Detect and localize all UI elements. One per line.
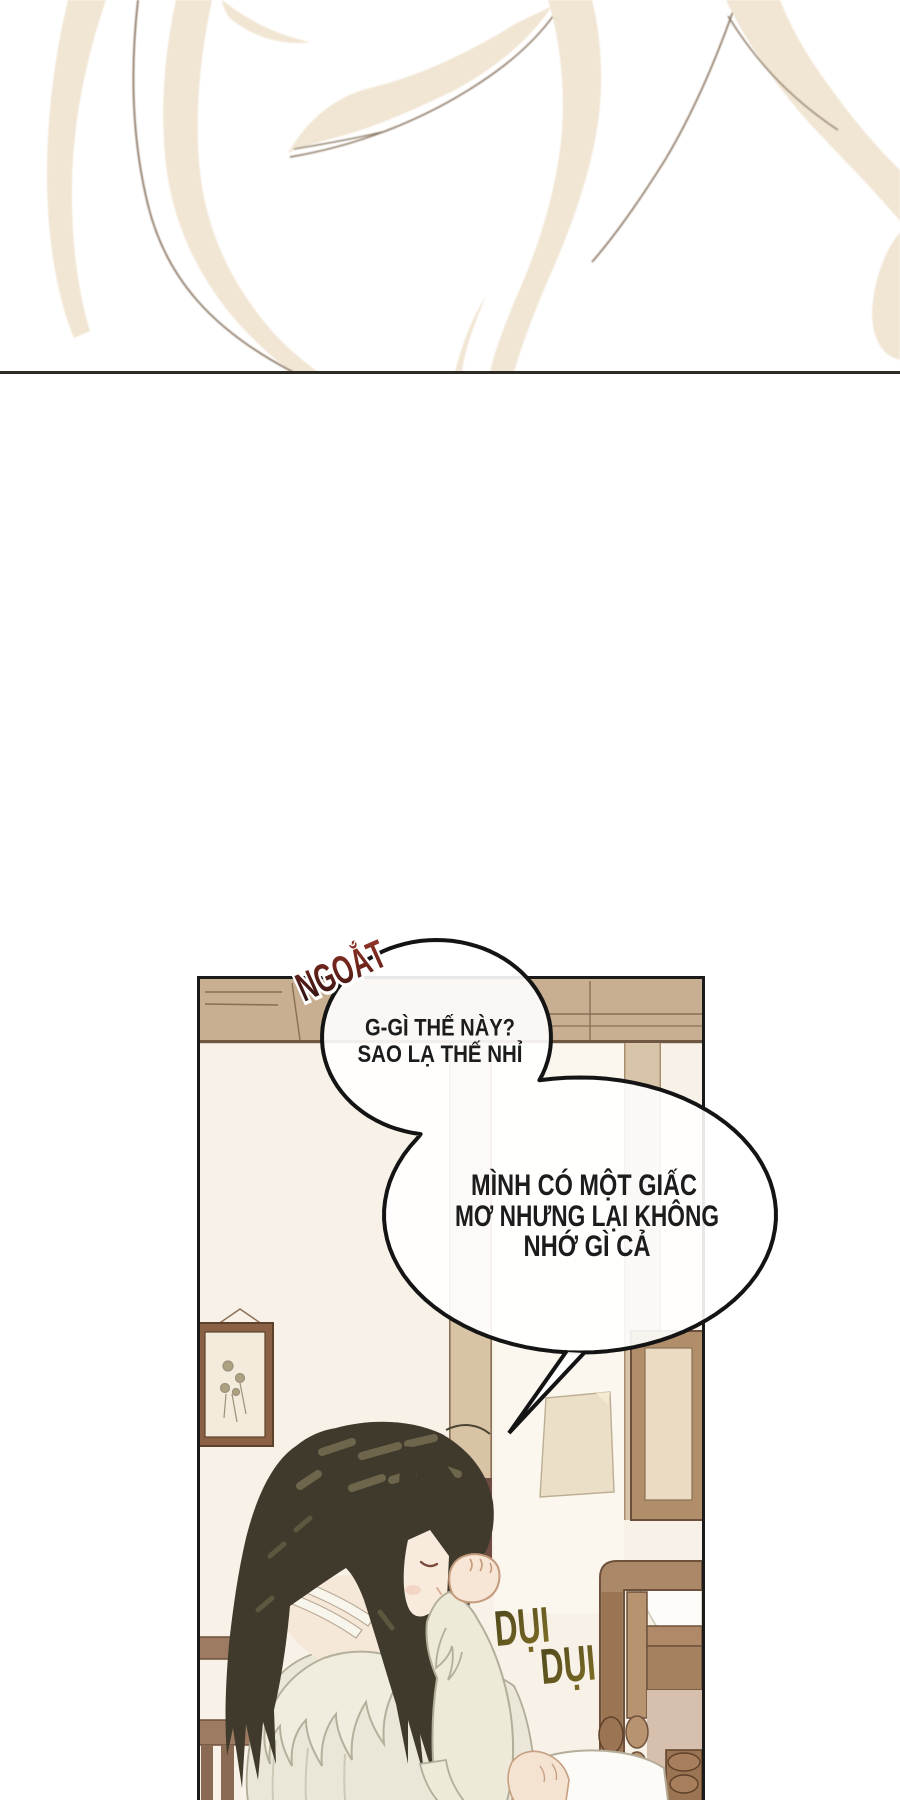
svg-text:MÌNH CÓ MỘT GIẤC: MÌNH CÓ MỘT GIẤC <box>471 1168 697 1202</box>
svg-text:DỤI: DỤI <box>538 1634 598 1695</box>
svg-text:NHỚ GÌ CẢ: NHỚ GÌ CẢ <box>524 1229 651 1263</box>
svg-text:SAO LẠ THẾ NHỈ: SAO LẠ THẾ NHỈ <box>358 1039 523 1068</box>
svg-text:MƠ NHƯNG LẠI KHÔNG: MƠ NHƯNG LẠI KHÔNG <box>455 1199 719 1233</box>
svg-text:G-GÌ THẾ NÀY?: G-GÌ THẾ NÀY? <box>365 1014 515 1042</box>
